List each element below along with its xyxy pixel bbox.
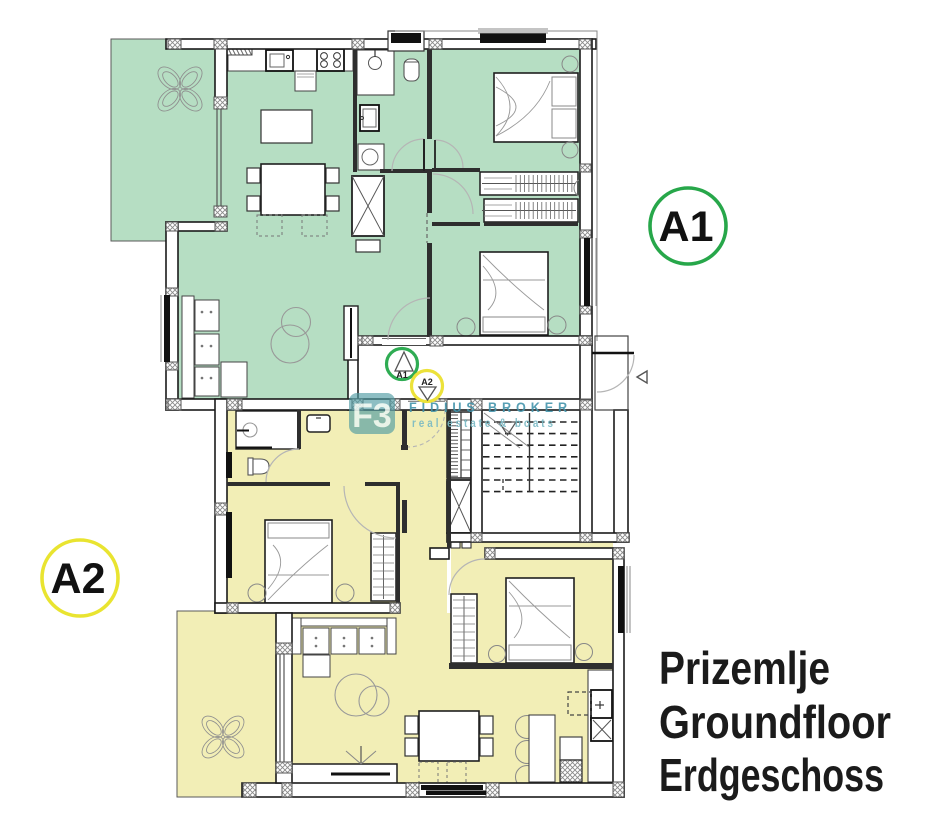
svg-text:F3: F3 — [352, 397, 392, 435]
svg-text:A2: A2 — [51, 555, 106, 603]
svg-text:A1: A1 — [396, 370, 408, 380]
svg-text:A2: A2 — [421, 377, 433, 387]
svg-text:A1: A1 — [659, 203, 714, 251]
svg-text:Prizemlje: Prizemlje — [659, 642, 830, 694]
svg-text:FIDIUS BROKER: FIDIUS BROKER — [409, 400, 572, 415]
svg-text:Erdgeschoss: Erdgeschoss — [659, 749, 884, 801]
svg-text:Groundfloor: Groundfloor — [659, 696, 891, 748]
svg-text:real estate & boats: real estate & boats — [412, 418, 556, 430]
